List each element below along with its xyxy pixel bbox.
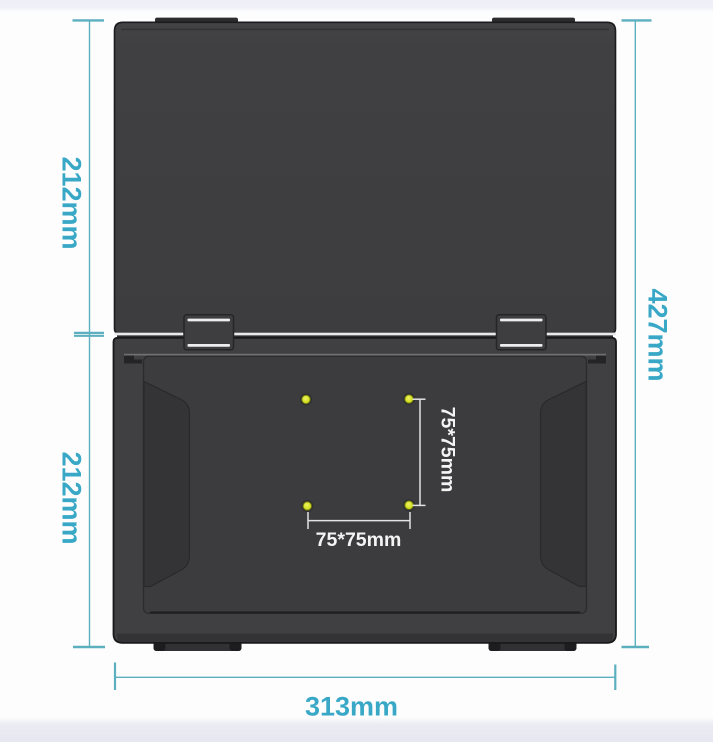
svg-text:212mm: 212mm	[57, 156, 87, 249]
svg-text:75*75mm: 75*75mm	[316, 529, 402, 551]
svg-text:212mm: 212mm	[57, 451, 87, 544]
svg-text:427mm: 427mm	[642, 288, 672, 381]
svg-text:313mm: 313mm	[305, 692, 398, 722]
svg-text:75*75mm: 75*75mm	[437, 407, 459, 493]
